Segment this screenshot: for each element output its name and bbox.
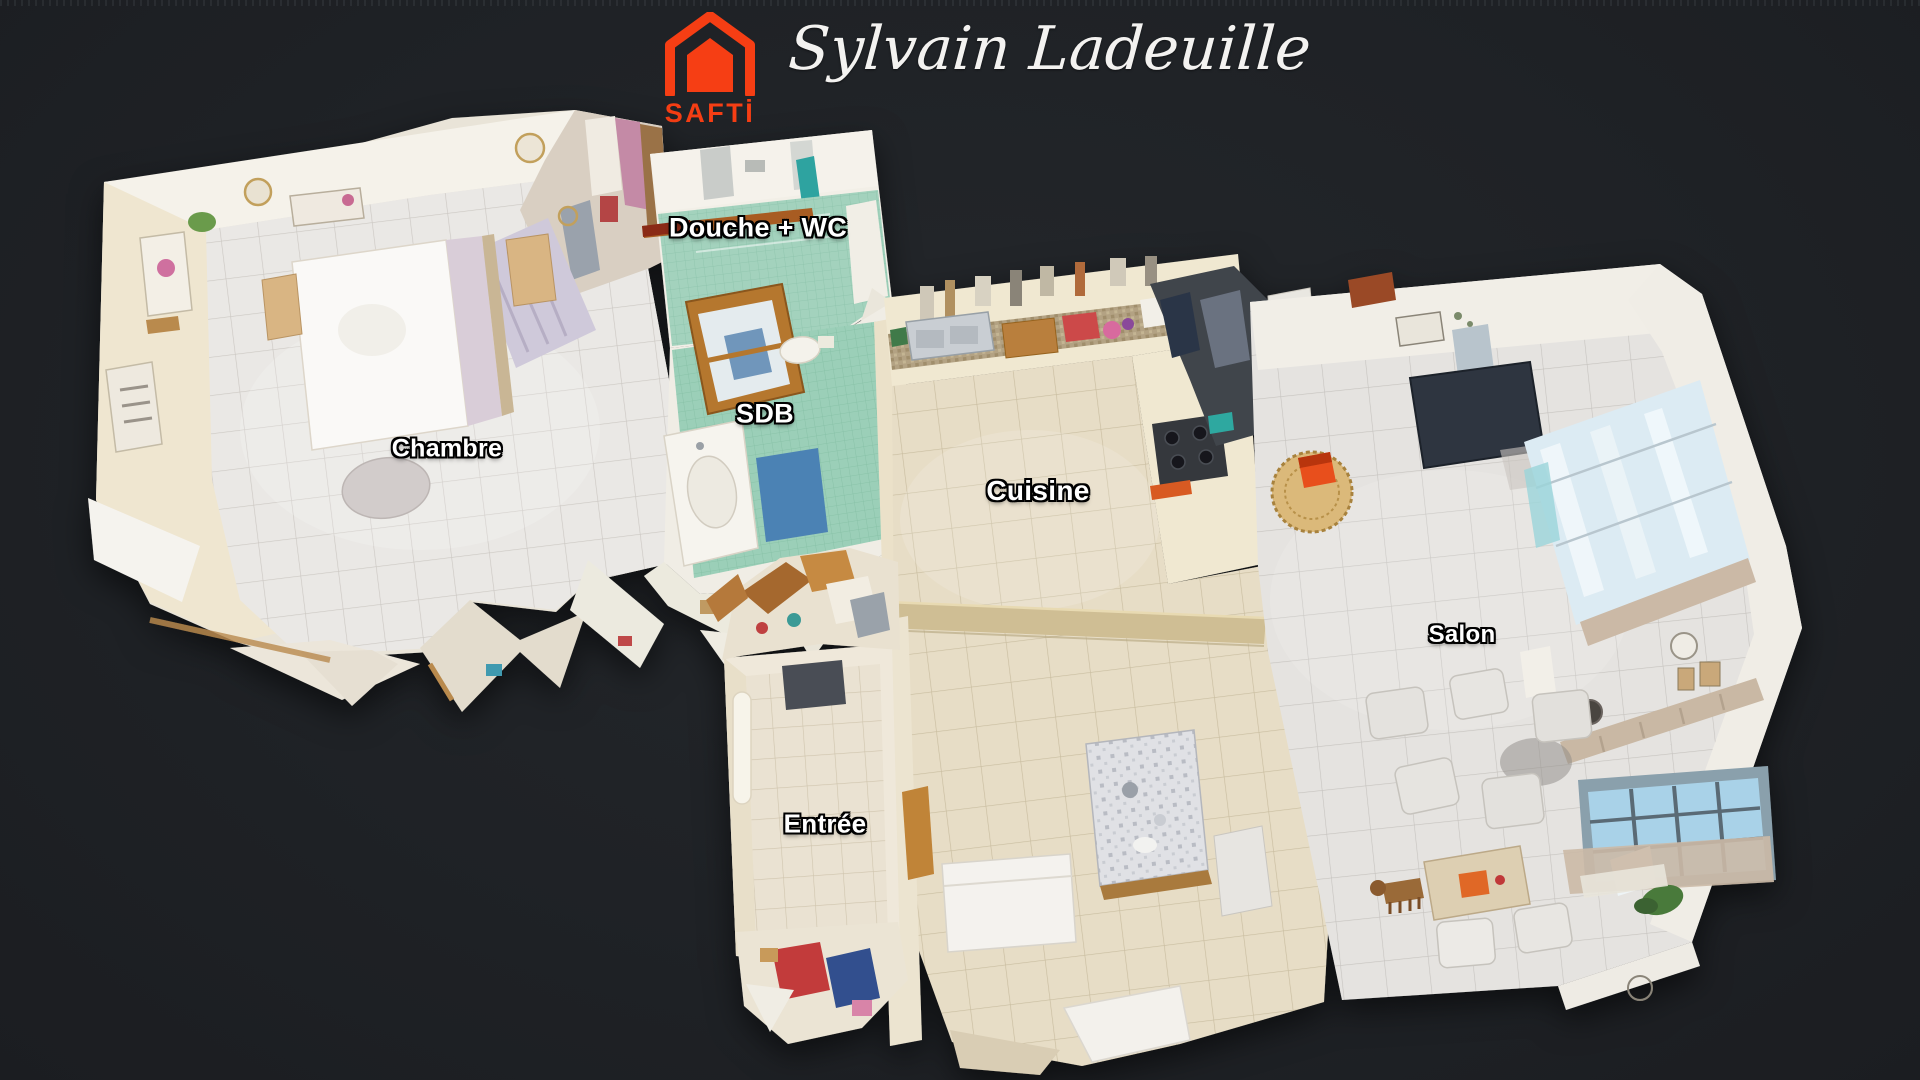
room-label-chambre: Chambre (392, 435, 502, 464)
floorplan-3d-canvas[interactable] (0, 0, 1920, 1080)
room-label-entree: Entrée (784, 809, 867, 840)
room-chambre-graphic (88, 110, 702, 712)
room-label-salon: Salon (1429, 621, 1496, 649)
room-label-sdb: SDB (736, 399, 794, 430)
room-entree-graphic (706, 548, 908, 1044)
room-salon-graphic (1250, 264, 1802, 1010)
room-label-cuisine: Cuisine (986, 475, 1089, 507)
matterport-dollhouse-view: SAFTİ Sylvain Ladeuille (0, 0, 1920, 1080)
room-label-douche-wc: Douche + WC (669, 213, 847, 244)
